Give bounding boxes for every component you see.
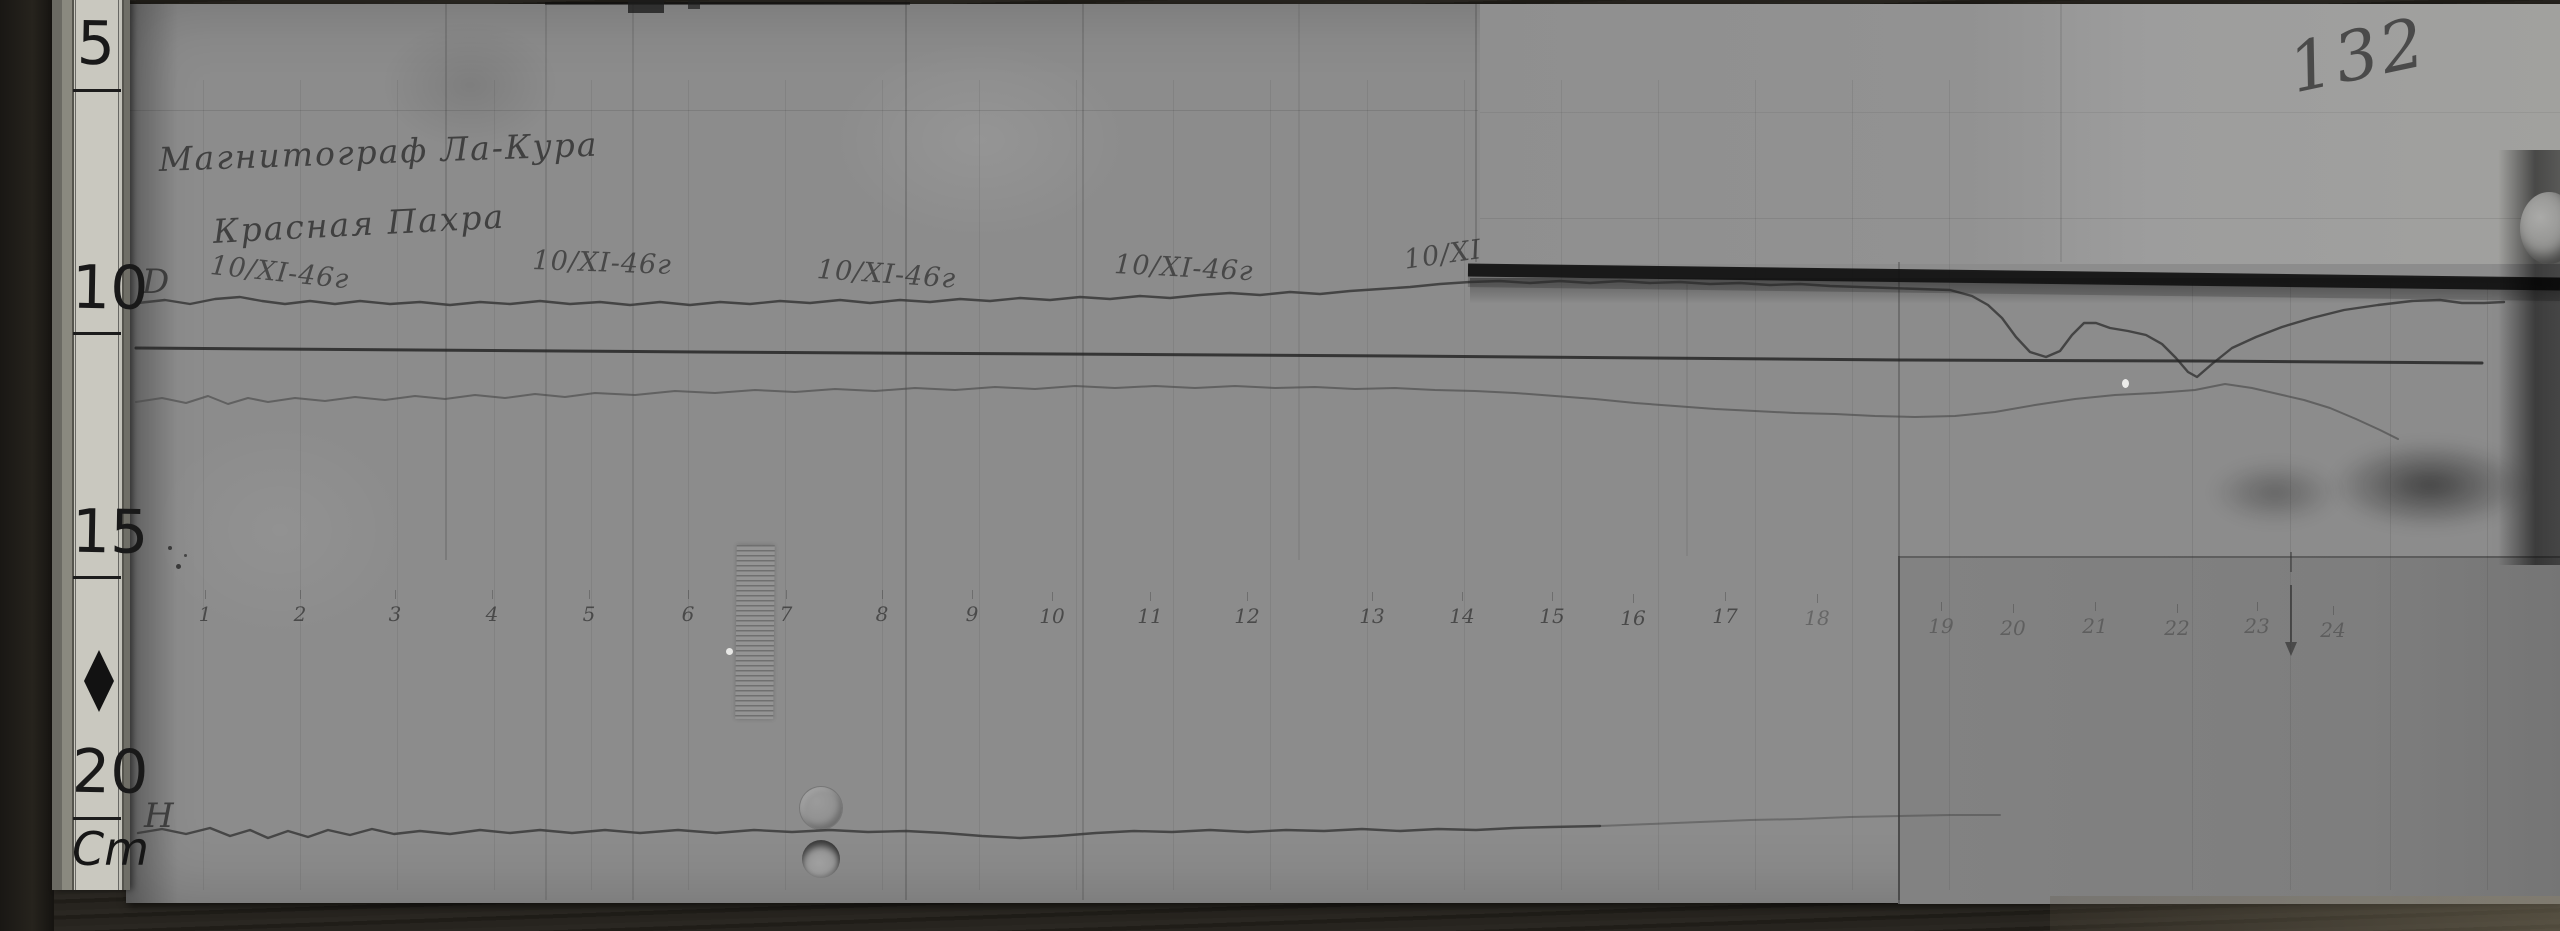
ruler-number-10: 10	[71, 258, 120, 319]
trace-bottom	[138, 826, 1600, 838]
hour-number-3: 3	[389, 602, 402, 626]
hour-tickmark-1	[205, 590, 206, 599]
hour-tickmark-7	[786, 590, 787, 599]
hour-number-4: 4	[486, 602, 499, 626]
hour-number-12: 12	[1234, 604, 1259, 628]
magnetogram-photograph: Магнитограф Ла-Кура Красная Пахра 132 10…	[0, 0, 2560, 931]
punch-hole	[802, 840, 840, 878]
hour-tickmark-3	[395, 590, 396, 599]
hour-tickmark-23	[2257, 602, 2258, 611]
trace-baseline	[136, 348, 2482, 363]
ruler-number-5: 5	[71, 14, 120, 75]
ruler-number-15: 15	[71, 502, 120, 563]
arrow-head	[2285, 642, 2297, 656]
trace-bottom_faint	[1600, 815, 2000, 826]
dark-speck	[168, 546, 172, 550]
hour-number-10: 10	[1039, 604, 1064, 628]
down-arrow-annotation	[2285, 552, 2297, 656]
hour-tickmark-4	[492, 590, 493, 599]
hour-tickmark-6	[688, 590, 689, 599]
dark-speck	[176, 564, 181, 569]
dark-speck	[184, 554, 187, 557]
white-speck	[2122, 379, 2129, 388]
hour-tickmark-20	[2013, 604, 2014, 613]
hour-tickmark-12	[1247, 592, 1248, 601]
hour-number-9: 9	[966, 602, 979, 626]
hour-tickmark-17	[1725, 592, 1726, 601]
hour-number-13: 13	[1359, 604, 1384, 628]
trace-hmid	[136, 384, 2398, 439]
hour-tickmark-15	[1552, 592, 1553, 601]
hour-number-5: 5	[583, 602, 596, 626]
hour-number-18: 18	[1804, 606, 1829, 630]
hour-number-7: 7	[780, 602, 793, 626]
frayed-tape-strip	[735, 545, 775, 719]
wood-table-bottom-right	[2050, 896, 2560, 931]
magnetogram-traces	[136, 281, 2504, 838]
hour-number-22: 22	[2164, 616, 2189, 640]
hour-tickmark-18	[1817, 594, 1818, 603]
ruler-diamond-mark	[84, 650, 114, 712]
hour-number-15: 15	[1539, 604, 1564, 628]
hour-number-8: 8	[876, 602, 889, 626]
hour-tickmark-5	[589, 590, 590, 599]
hour-number-2: 2	[294, 602, 307, 626]
hour-number-14: 14	[1449, 604, 1474, 628]
hour-tickmark-13	[1372, 592, 1373, 601]
hour-number-16: 16	[1620, 606, 1645, 630]
ruler-unit-label: Cm	[72, 822, 122, 876]
hour-number-17: 17	[1712, 604, 1737, 628]
hour-number-20: 20	[2000, 616, 2025, 640]
ruler-tick-5	[73, 89, 121, 92]
hour-tickmark-10	[1052, 592, 1053, 601]
ruler-number-20: 20	[71, 742, 120, 803]
hour-tickmark-19	[1941, 602, 1942, 611]
white-speck	[726, 648, 733, 655]
hour-tickmark-24	[2333, 606, 2334, 615]
ruler-tick-20	[73, 817, 121, 820]
date-annotation-2: 10/XI-46г	[532, 245, 672, 281]
hour-tickmark-14	[1462, 592, 1463, 601]
ruler-tick-10	[73, 332, 121, 335]
hour-number-24: 24	[2320, 618, 2345, 642]
hour-number-11: 11	[1137, 604, 1162, 628]
dark-smudge	[2210, 460, 2340, 525]
hour-number-19: 19	[1928, 614, 1953, 638]
centimeter-ruler: 5101520 Cm	[52, 0, 130, 890]
hour-tickmark-2	[300, 590, 301, 599]
hour-tickmark-22	[2177, 604, 2178, 613]
hour-number-1: 1	[199, 602, 212, 626]
hour-number-21: 21	[2082, 614, 2107, 638]
hour-tickmark-9	[972, 590, 973, 599]
hour-tickmark-8	[882, 590, 883, 599]
punch-hole	[800, 787, 842, 829]
dark-sheet-edge-band	[1468, 270, 2560, 290]
hour-number-6: 6	[682, 602, 695, 626]
hour-tickmark-11	[1150, 592, 1151, 601]
hour-tickmark-16	[1633, 594, 1634, 603]
hour-number-23: 23	[2244, 614, 2269, 638]
ruler-tick-15	[73, 576, 121, 579]
hour-tickmark-21	[2095, 602, 2096, 611]
